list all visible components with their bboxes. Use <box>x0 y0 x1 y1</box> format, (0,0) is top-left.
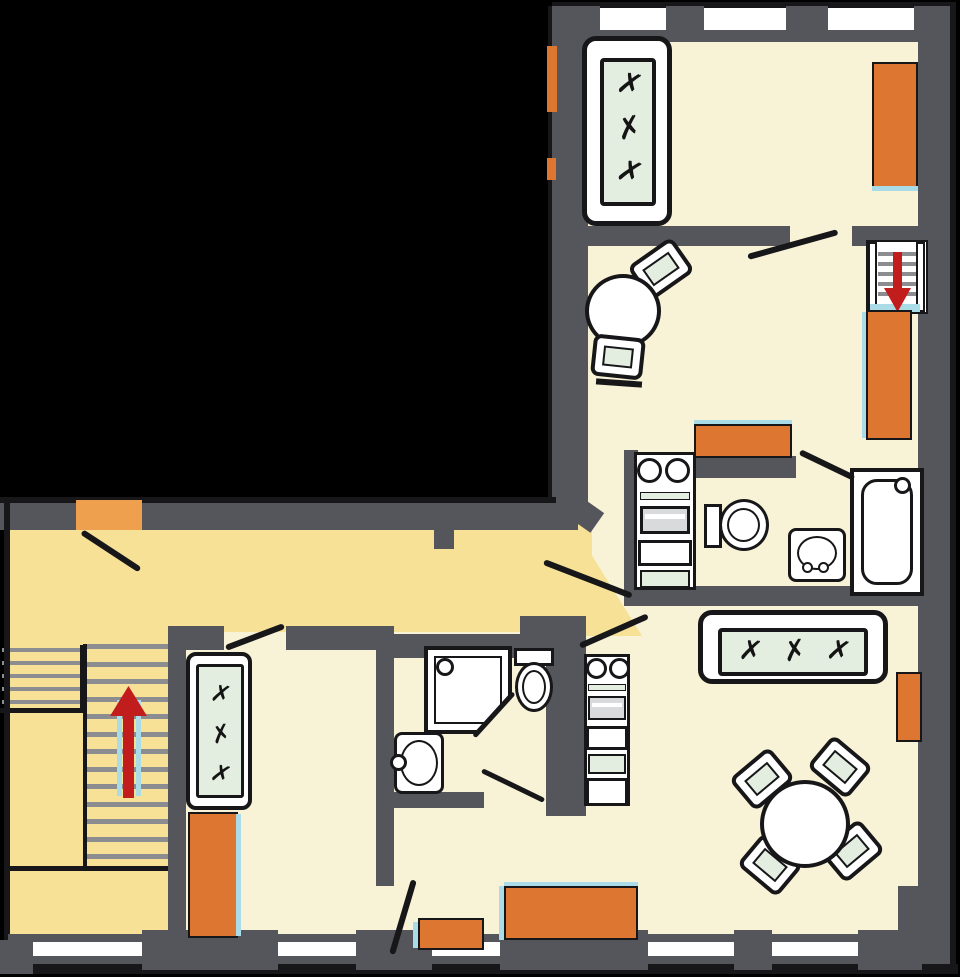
radiator-living <box>896 672 922 742</box>
wall-top-pillar-2 <box>786 6 828 42</box>
radiator-exterior-2 <box>547 158 556 180</box>
toilet1-bowl-inner <box>727 508 760 542</box>
wall-bottom-corner-left <box>0 940 33 974</box>
wardrobe-bedroom1 <box>872 62 918 190</box>
radiator-exterior-1 <box>547 46 557 112</box>
bathtub-inner <box>861 479 913 585</box>
stairs-upper-treads-tread-2 <box>2 661 82 665</box>
stairs-landing-line <box>8 866 172 871</box>
stove1-burner-2 <box>665 458 690 483</box>
wardrobe-bedroom1-blue <box>872 186 918 191</box>
kitchen-bench <box>418 918 484 950</box>
stairs-main-treads-tread-1 <box>86 644 172 649</box>
stairs-down-rail-right <box>916 242 925 312</box>
stove1-drawer <box>638 540 692 566</box>
stairs-main-treads-tread-10 <box>86 802 172 807</box>
stairs-main-left-line <box>83 644 87 870</box>
stove1-oven <box>640 506 690 534</box>
floor-plan-canvas: ✗✗✗✗✗✗✗✗✗ <box>0 0 960 977</box>
stove2-burner-1 <box>586 658 607 679</box>
wall-hall-top-left <box>0 503 76 530</box>
stairs-main-treads-tread-3 <box>86 679 172 684</box>
bathtub-faucet <box>894 477 911 494</box>
wall-dining-bottom <box>690 456 796 478</box>
wall-top-pillar-1 <box>666 6 704 42</box>
dining-chair-2-seat <box>602 345 634 368</box>
stove2-oven <box>588 696 626 720</box>
stove1-band <box>640 492 690 500</box>
sofa2-stitch-2: ✗ <box>781 636 809 668</box>
wall-hall-stub <box>434 530 454 549</box>
stairs-down-rail-left <box>868 242 877 312</box>
wall-left-edge-line <box>4 500 10 966</box>
window-top-band <box>556 8 952 32</box>
stove1-counter <box>640 570 690 588</box>
wall-stairwell-divider <box>168 626 186 970</box>
stove1-burner-1 <box>637 458 662 483</box>
stairs-upper-treads-tread-5 <box>2 700 82 704</box>
stairs-upper-treads-tread-1 <box>2 648 82 652</box>
wall-bottom-corner-right <box>858 930 922 970</box>
stairs-upper-treads-tread-3 <box>2 674 82 678</box>
wall-right-outer-line <box>950 2 956 968</box>
stove2-burner-2 <box>609 658 630 679</box>
entrance-mat <box>76 500 142 530</box>
stove1-oven-line <box>645 514 685 519</box>
stairs-main-treads-tread-2 <box>86 662 172 667</box>
wall-bottom-pillar-4 <box>734 930 772 970</box>
stairs-upper-end-line <box>0 708 85 713</box>
stairs-up-arrow-shaft <box>123 714 134 798</box>
kitchen-sideboard <box>504 886 638 940</box>
stairs-main-treads-tread-13 <box>86 854 172 859</box>
stairs-upper-treads-tread-4 <box>2 687 82 691</box>
sink1-dot-1 <box>802 562 813 573</box>
toilet2-bowl-inner <box>522 670 546 704</box>
sink1-dot-2 <box>818 562 829 573</box>
sideboard-dining <box>694 424 792 458</box>
stairs-main-treads-tread-11 <box>86 819 172 824</box>
sofa2-stitch-1: ✗ <box>738 636 765 667</box>
stove2-drawer <box>586 726 628 750</box>
stove2-band <box>588 684 626 691</box>
stairs-down-arrow-shaft <box>893 252 902 294</box>
wall-bathroom2-bottom <box>392 792 484 808</box>
bed-dining <box>866 310 912 440</box>
dining2-table <box>760 780 850 868</box>
wall-hall-top-right <box>142 503 578 530</box>
stove2-oven-line <box>592 703 622 707</box>
stove2-counter <box>586 778 628 806</box>
bed-bedroom2 <box>188 812 238 938</box>
stairs-main-treads-tread-12 <box>86 837 172 842</box>
shower-drain <box>436 658 454 676</box>
stove2-green <box>588 754 626 774</box>
sink2-faucet <box>390 754 407 771</box>
bed-bedroom2-blue <box>236 814 241 936</box>
